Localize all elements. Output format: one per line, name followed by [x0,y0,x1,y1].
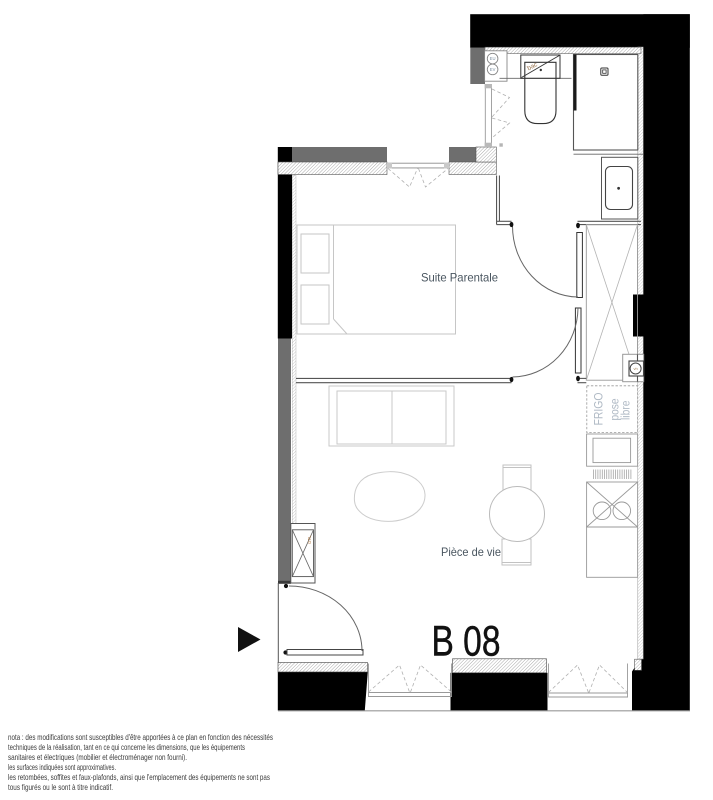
svg-text:FRIGO: FRIGO [594,392,606,425]
svg-text:B 08: B 08 [432,617,501,665]
svg-text:GTL: GTL [307,535,312,544]
svg-text:EV: EV [490,67,496,72]
svg-text:tous figurés ou le sont à titr: tous figurés ou le sont à titre indicati… [8,782,113,792]
svg-text:EU: EU [490,56,496,61]
svg-text:Pièce de vie: Pièce de vie [441,545,501,559]
svg-text:techniques de la réalisation,: techniques de la réalisation, tant en ce… [8,742,245,752]
svg-text:vh: vh [633,366,637,371]
svg-text:libre: libre [621,401,633,421]
svg-text:les retombées, soffites et fau: les retombées, soffites et faux-plafonds… [8,772,270,782]
svg-text:sanitaires et électriques (mob: sanitaires et électriques (mobilier et é… [8,752,187,762]
svg-text:Suite Parentale: Suite Parentale [421,270,498,284]
svg-text:les surfaces indiquées sont ap: les surfaces indiquées sont approximativ… [8,762,116,772]
svg-text:nota : des modifications sont: nota : des modifications sont susceptibl… [8,732,273,742]
